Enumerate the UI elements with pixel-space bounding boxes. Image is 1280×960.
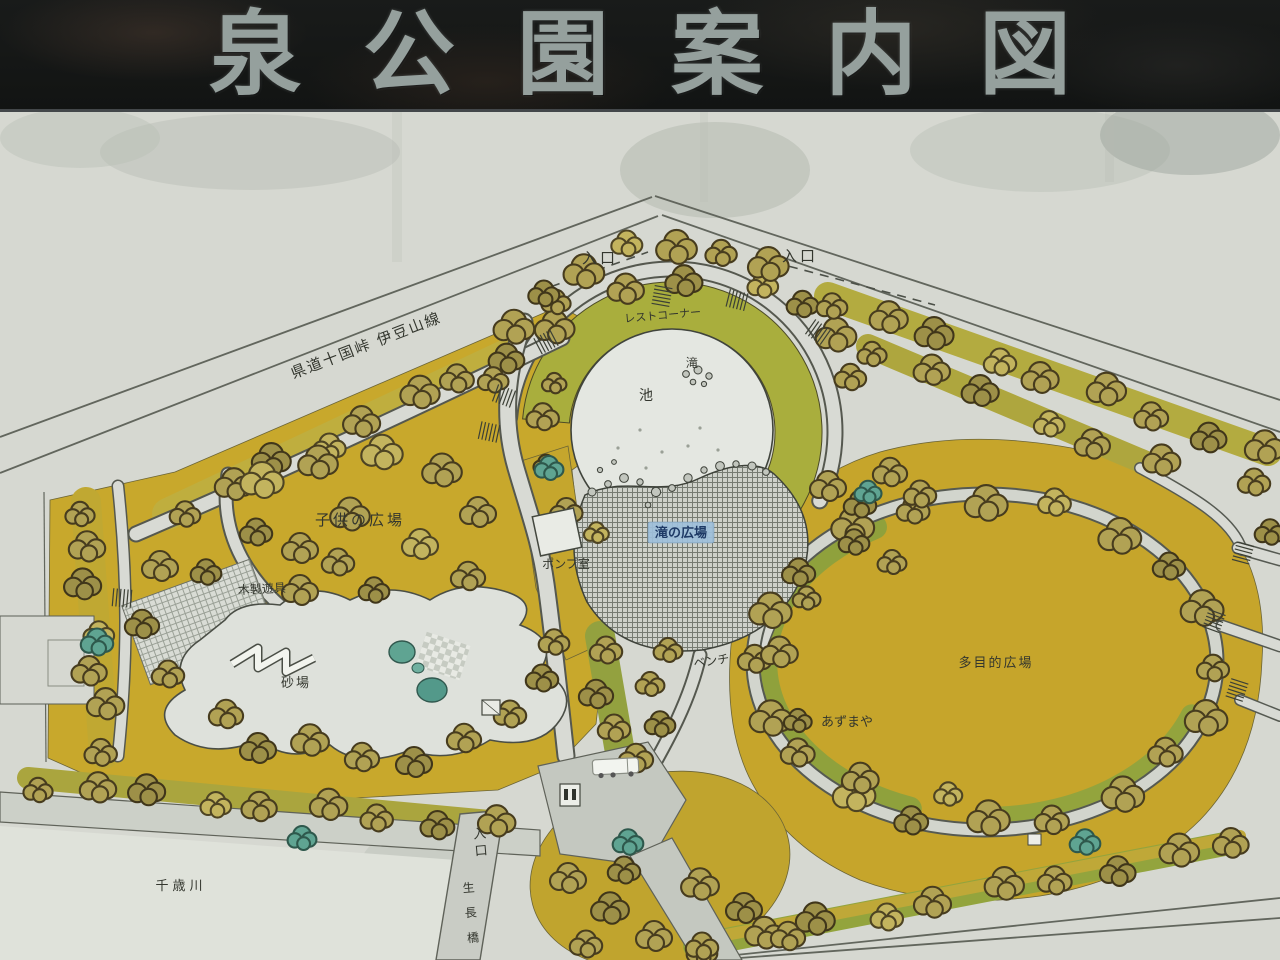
label-pump-room: ポンプ室 <box>542 556 590 571</box>
label-waterfall-plaza: 滝の広場 <box>648 522 714 543</box>
svg-text:あずまや: あずまや <box>821 715 873 730</box>
park-map-board: 県道十国峠 伊豆山線入口入口レストコーナー滝池子供の広場木製遊具ポンプ室滝の広場… <box>0 112 1280 960</box>
label-azumaya: あずまや <box>821 715 873 730</box>
park-sign-board: 泉公園案内図 <box>0 0 1280 960</box>
svg-text:滝の広場: 滝の広場 <box>655 525 707 541</box>
svg-text:ポンプ室: ポンプ室 <box>542 556 590 571</box>
label-childrens-plaza: 子供の広場 <box>315 511 405 529</box>
svg-text:多目的広場: 多目的広場 <box>958 655 1033 671</box>
sign-title: 泉公園案内図 <box>147 0 1133 111</box>
label-chitose-river: 千歳川 <box>155 879 206 894</box>
svg-text:入口: 入口 <box>582 249 618 267</box>
svg-text:池: 池 <box>639 388 653 404</box>
svg-text:木製遊具: 木製遊具 <box>237 580 286 597</box>
svg-text:砂場: 砂場 <box>281 676 311 691</box>
svg-text:子供の広場: 子供の広場 <box>315 511 405 529</box>
park-map: 県道十国峠 伊豆山線入口入口レストコーナー滝池子供の広場木製遊具ポンプ室滝の広場… <box>0 112 1280 960</box>
label-entrance-top-right: 入口 <box>782 247 818 265</box>
label-multipurpose-plaza: 多目的広場 <box>958 655 1033 671</box>
label-wooden-playset: 木製遊具 <box>237 580 286 597</box>
label-sandbox: 砂場 <box>281 676 311 691</box>
svg-text:入口: 入口 <box>782 247 818 265</box>
small-shed-icon <box>1028 834 1041 845</box>
svg-text:滝: 滝 <box>686 356 698 370</box>
pavilion-building-icon <box>482 700 500 715</box>
label-waterfall: 滝 <box>686 356 698 370</box>
label-entrance-top-left: 入口 <box>582 249 618 267</box>
pump-room-building-icon <box>532 508 581 556</box>
label-pond: 池 <box>639 388 653 404</box>
sign-title-band: 泉公園案内図 <box>0 0 1280 112</box>
svg-text:千歳川: 千歳川 <box>155 879 206 894</box>
toilet-sign-icon <box>560 784 580 806</box>
